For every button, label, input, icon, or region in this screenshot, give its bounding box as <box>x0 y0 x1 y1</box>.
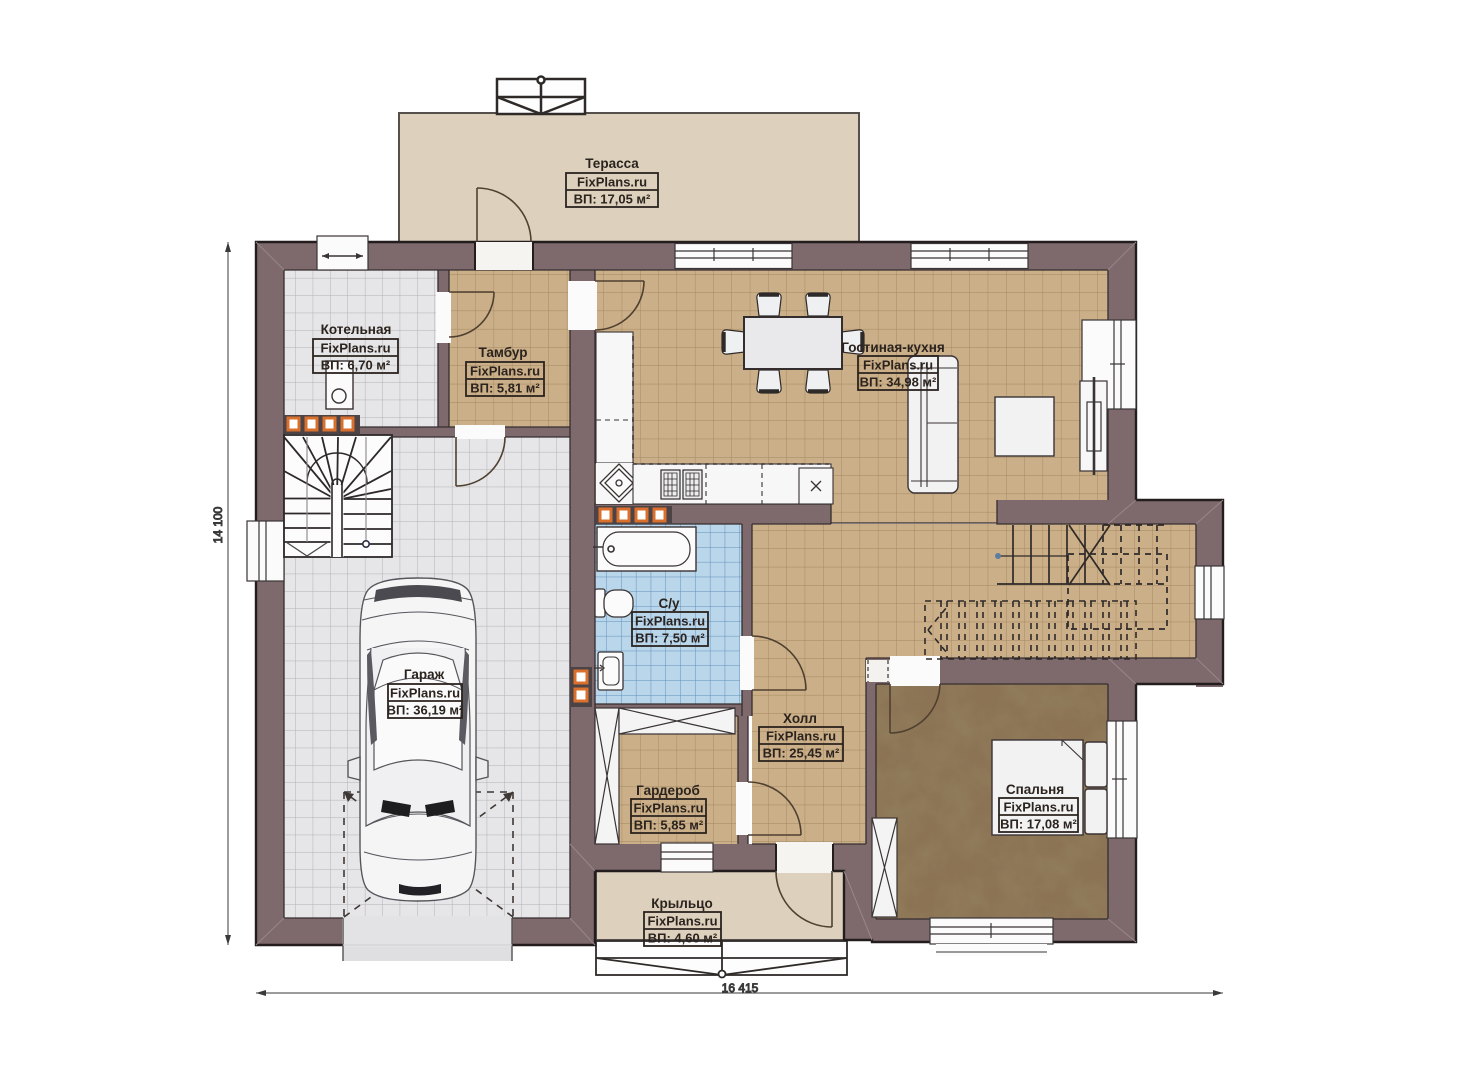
svg-text:FixPlans.ru: FixPlans.ru <box>766 729 836 744</box>
svg-text:FixPlans.ru: FixPlans.ru <box>635 614 705 629</box>
svg-text:Тамбур: Тамбур <box>479 345 528 360</box>
svg-text:ВП: 4,60 м²: ВП: 4,60 м² <box>648 931 718 946</box>
svg-text:FixPlans.ru: FixPlans.ru <box>647 914 717 929</box>
svg-text:FixPlans.ru: FixPlans.ru <box>577 175 647 190</box>
svg-text:Спальня: Спальня <box>1006 782 1064 797</box>
svg-text:Гардероб: Гардероб <box>636 783 700 798</box>
svg-text:ВП: 34,98 м²: ВП: 34,98 м² <box>860 375 937 390</box>
svg-text:Крыльцо: Крыльцо <box>651 896 712 911</box>
svg-text:Холл: Холл <box>783 711 817 726</box>
svg-text:16 415: 16 415 <box>722 981 759 995</box>
svg-text:FixPlans.ru: FixPlans.ru <box>470 364 540 379</box>
svg-text:ВП: 36,19 м²: ВП: 36,19 м² <box>387 703 464 718</box>
svg-text:FixPlans.ru: FixPlans.ru <box>390 686 460 701</box>
svg-text:ВП: 5,81 м²: ВП: 5,81 м² <box>470 381 540 396</box>
svg-text:ВП: 17,08 м²: ВП: 17,08 м² <box>1000 817 1077 832</box>
svg-text:FixPlans.ru: FixPlans.ru <box>1003 800 1073 815</box>
svg-text:ВП: 5,85 м²: ВП: 5,85 м² <box>634 818 704 833</box>
svg-text:Котельная: Котельная <box>321 322 392 337</box>
svg-text:ВП: 6,70 м²: ВП: 6,70 м² <box>321 358 391 373</box>
svg-text:FixPlans.ru: FixPlans.ru <box>320 341 390 356</box>
svg-text:14 100: 14 100 <box>211 506 225 543</box>
svg-text:ВП: 17,05 м²: ВП: 17,05 м² <box>574 192 651 207</box>
svg-text:ВП: 7,50 м²: ВП: 7,50 м² <box>635 631 705 646</box>
svg-text:Гостиная-кухня: Гостиная-кухня <box>841 340 944 355</box>
svg-text:С/у: С/у <box>658 596 680 611</box>
svg-text:ВП: 25,45 м²: ВП: 25,45 м² <box>763 746 840 761</box>
svg-text:FixPlans.ru: FixPlans.ru <box>863 358 933 373</box>
svg-text:FixPlans.ru: FixPlans.ru <box>633 801 703 816</box>
svg-text:Терасса: Терасса <box>585 156 639 171</box>
svg-text:Гараж: Гараж <box>404 667 445 682</box>
